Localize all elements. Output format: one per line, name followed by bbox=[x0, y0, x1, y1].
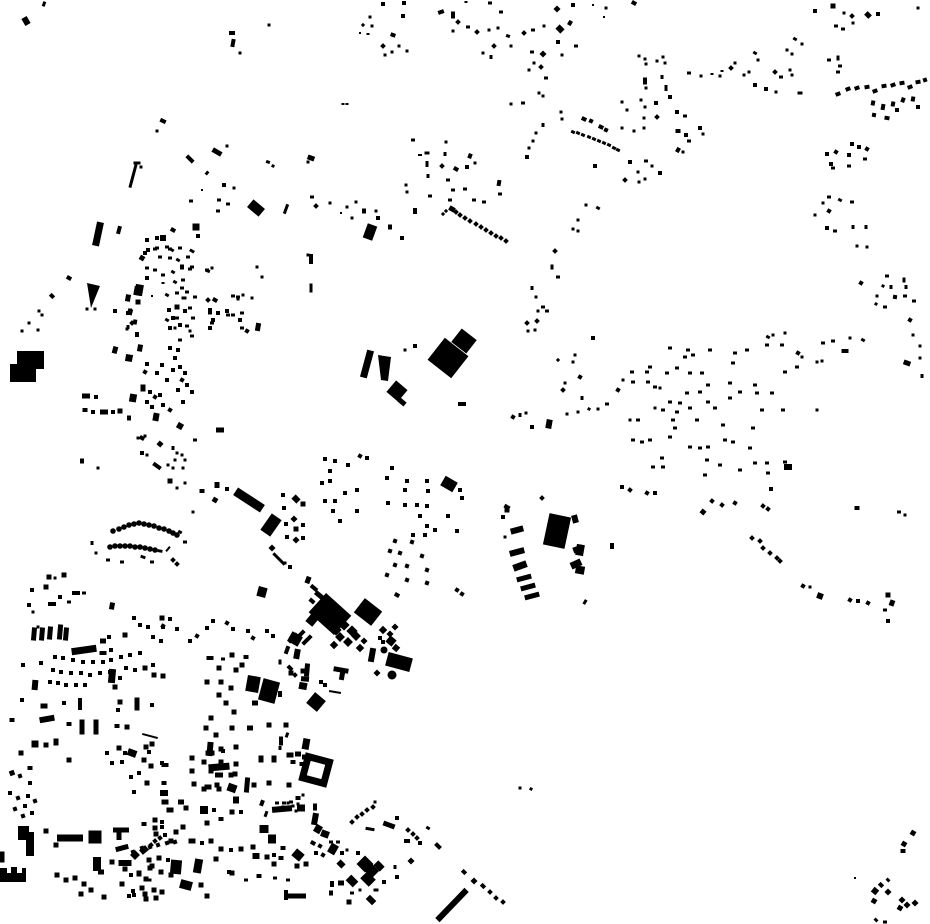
building-footprint bbox=[201, 189, 203, 191]
building-footprint bbox=[307, 161, 310, 164]
building-footprint bbox=[764, 87, 768, 91]
building-footprint bbox=[827, 59, 831, 62]
building-footprint bbox=[100, 651, 107, 655]
building-footprint bbox=[445, 141, 448, 144]
building-footprint bbox=[301, 634, 312, 645]
building-footprint bbox=[291, 848, 304, 861]
building-footprint bbox=[302, 806, 305, 809]
building-footprint bbox=[118, 676, 122, 680]
building-footprint bbox=[253, 853, 260, 859]
building-footprint bbox=[459, 591, 464, 596]
building-footprint bbox=[151, 663, 155, 667]
building-footprint bbox=[57, 624, 63, 639]
building-footprint bbox=[581, 396, 584, 400]
building-footprint bbox=[728, 397, 732, 400]
building-footprint bbox=[266, 160, 271, 164]
building-footprint bbox=[150, 561, 154, 564]
building-footprint bbox=[115, 724, 120, 728]
building-footprint bbox=[129, 775, 133, 779]
building-footprint bbox=[102, 895, 107, 900]
building-footprint bbox=[534, 329, 537, 332]
building-footprint bbox=[284, 723, 289, 728]
building-footprint bbox=[343, 491, 347, 495]
building-footprint bbox=[175, 627, 179, 631]
building-footprint bbox=[592, 137, 597, 141]
building-footprint bbox=[898, 896, 905, 903]
building-footprint bbox=[125, 354, 133, 362]
building-footprint bbox=[675, 147, 681, 153]
building-footprint bbox=[30, 811, 34, 815]
building-footprint bbox=[532, 140, 535, 143]
building-footprint bbox=[605, 403, 609, 406]
building-footprint bbox=[646, 381, 650, 384]
building-footprint bbox=[310, 284, 313, 293]
building-footprint bbox=[20, 813, 25, 818]
building-footprint bbox=[397, 550, 402, 555]
building-footprint bbox=[847, 153, 851, 157]
building-footprint bbox=[123, 867, 128, 872]
building-footprint bbox=[162, 781, 167, 785]
building-footprint bbox=[216, 428, 224, 433]
building-footprint bbox=[695, 419, 699, 422]
building-footprint bbox=[120, 760, 124, 764]
building-footprint bbox=[497, 180, 502, 187]
building-footprint bbox=[849, 13, 855, 19]
building-footprint bbox=[328, 479, 332, 483]
building-footprint bbox=[295, 752, 301, 757]
building-footprint bbox=[460, 496, 464, 500]
building-footprint bbox=[448, 199, 452, 202]
building-footprint bbox=[189, 330, 192, 333]
building-footprint bbox=[48, 680, 52, 684]
building-footprint bbox=[12, 806, 17, 811]
building-footprint bbox=[245, 675, 261, 693]
building-footprint bbox=[264, 811, 269, 818]
building-footprint bbox=[627, 487, 633, 493]
building-polygon bbox=[10, 351, 44, 382]
building-footprint bbox=[452, 30, 455, 33]
building-footprint bbox=[434, 842, 442, 850]
building-footprint bbox=[233, 488, 265, 513]
building-footprint bbox=[685, 392, 689, 395]
building-footprint bbox=[224, 620, 229, 625]
building-footprint bbox=[706, 401, 710, 404]
building-footprint bbox=[384, 54, 387, 57]
building-footprint bbox=[261, 276, 264, 279]
building-footprint bbox=[687, 140, 691, 143]
building-footprint bbox=[128, 653, 132, 657]
building-footprint bbox=[127, 416, 131, 421]
building-footprint bbox=[329, 690, 341, 694]
building-footprint bbox=[404, 349, 407, 352]
building-footprint bbox=[591, 336, 595, 340]
building-footprint bbox=[152, 462, 162, 470]
round-building-footprint bbox=[122, 543, 128, 549]
building-footprint bbox=[544, 77, 548, 80]
building-footprint bbox=[160, 363, 164, 367]
building-footprint bbox=[211, 318, 215, 322]
building-footprint bbox=[73, 876, 78, 881]
building-footprint bbox=[272, 853, 276, 857]
building-footprint bbox=[893, 295, 898, 300]
building-footprint bbox=[176, 452, 179, 455]
building-footprint bbox=[753, 83, 757, 87]
building-polygon bbox=[0, 867, 26, 882]
building-footprint bbox=[428, 195, 432, 198]
building-footprint bbox=[175, 292, 179, 295]
building-footprint bbox=[425, 524, 429, 528]
building-footprint bbox=[117, 832, 122, 840]
building-footprint bbox=[209, 716, 214, 721]
building-footprint bbox=[226, 203, 230, 206]
building-footprint bbox=[467, 218, 473, 224]
building-footprint bbox=[140, 166, 143, 169]
building-footprint bbox=[327, 843, 339, 856]
building-footprint bbox=[125, 294, 131, 302]
building-footprint bbox=[153, 818, 158, 823]
building-footprint bbox=[622, 379, 625, 382]
building-footprint bbox=[51, 668, 55, 672]
building-footprint bbox=[165, 293, 170, 298]
building-footprint bbox=[382, 880, 386, 884]
building-footprint bbox=[26, 794, 30, 798]
building-footprint bbox=[161, 625, 165, 629]
building-footprint bbox=[37, 626, 40, 629]
building-footprint bbox=[809, 586, 812, 589]
building-footprint bbox=[542, 123, 545, 127]
building-footprint bbox=[530, 425, 534, 429]
building-footprint bbox=[881, 104, 886, 111]
building-footprint bbox=[831, 340, 835, 343]
building-footprint bbox=[360, 637, 367, 644]
building-footprint bbox=[411, 533, 415, 537]
building-footprint bbox=[176, 422, 184, 430]
building-footprint bbox=[837, 56, 840, 61]
building-footprint bbox=[250, 635, 255, 640]
building-footprint bbox=[480, 883, 486, 889]
building-footprint bbox=[886, 619, 890, 623]
building-footprint bbox=[889, 599, 896, 606]
building-footprint bbox=[71, 645, 97, 655]
building-footprint bbox=[163, 833, 167, 837]
building-footprint bbox=[113, 309, 117, 313]
building-footprint bbox=[333, 459, 337, 463]
building-footprint bbox=[643, 117, 646, 120]
building-footprint bbox=[644, 58, 647, 61]
building-footprint bbox=[44, 829, 49, 834]
building-footprint bbox=[748, 447, 752, 450]
building-footprint bbox=[247, 726, 253, 731]
building-footprint bbox=[836, 71, 840, 74]
building-footprint bbox=[161, 403, 165, 407]
building-footprint bbox=[185, 154, 194, 163]
building-footprint bbox=[394, 592, 400, 598]
building-footprint bbox=[167, 407, 172, 412]
building-footprint bbox=[284, 522, 288, 526]
building-footprint bbox=[165, 318, 170, 323]
building-footprint bbox=[631, 439, 635, 442]
building-footprint bbox=[0, 852, 5, 863]
building-footprint bbox=[535, 296, 538, 299]
building-footprint bbox=[302, 794, 305, 797]
building-footprint bbox=[193, 296, 197, 299]
building-footprint bbox=[539, 50, 546, 57]
building-footprint bbox=[113, 685, 118, 690]
building-footprint bbox=[172, 446, 175, 450]
building-footprint bbox=[109, 648, 113, 652]
building-footprint bbox=[866, 246, 869, 249]
building-footprint bbox=[284, 890, 288, 900]
building-footprint bbox=[256, 586, 267, 598]
building-footprint bbox=[311, 813, 319, 826]
building-footprint bbox=[144, 435, 147, 438]
building-footprint bbox=[510, 103, 513, 106]
building-footprint bbox=[320, 829, 330, 838]
building-footprint bbox=[142, 369, 147, 374]
building-footprint bbox=[162, 800, 169, 805]
building-footprint bbox=[899, 81, 905, 86]
building-footprint bbox=[150, 405, 154, 409]
building-footprint bbox=[185, 383, 189, 387]
building-footprint bbox=[636, 419, 640, 422]
building-footprint bbox=[205, 894, 210, 899]
building-footprint bbox=[779, 76, 783, 79]
building-footprint bbox=[529, 787, 533, 791]
building-footprint bbox=[166, 858, 170, 862]
building-footprint bbox=[386, 501, 390, 505]
building-footprint bbox=[268, 24, 271, 27]
building-footprint bbox=[658, 171, 662, 175]
building-footprint bbox=[67, 722, 72, 726]
building-footprint bbox=[854, 85, 860, 90]
building-footprint bbox=[884, 116, 890, 121]
building-footprint bbox=[206, 751, 215, 756]
building-footprint bbox=[291, 760, 296, 764]
building-footprint bbox=[72, 591, 80, 595]
building-footprint bbox=[105, 751, 109, 755]
building-footprint bbox=[533, 62, 536, 65]
building-footprint bbox=[310, 196, 314, 199]
building-footprint bbox=[133, 668, 137, 672]
building-footprint bbox=[244, 328, 249, 333]
building-footprint bbox=[607, 143, 612, 147]
building-footprint bbox=[365, 827, 374, 832]
building-footprint bbox=[506, 34, 511, 38]
building-footprint bbox=[205, 297, 211, 303]
building-footprint bbox=[162, 282, 165, 284]
building-footprint bbox=[753, 462, 757, 465]
building-footprint bbox=[244, 655, 249, 659]
building-footprint bbox=[143, 251, 147, 255]
building-footprint bbox=[123, 751, 127, 755]
building-footprint bbox=[209, 839, 214, 844]
building-footprint bbox=[44, 743, 49, 748]
building-footprint bbox=[295, 810, 298, 813]
building-footprint bbox=[144, 897, 149, 902]
building-footprint bbox=[221, 658, 225, 661]
building-footprint bbox=[239, 810, 243, 814]
building-footprint bbox=[302, 738, 311, 750]
building-footprint bbox=[698, 126, 702, 130]
building-footprint bbox=[107, 635, 111, 639]
building-footprint bbox=[827, 196, 831, 199]
building-footprint bbox=[760, 545, 766, 551]
building-footprint bbox=[821, 342, 825, 345]
building-footprint bbox=[170, 557, 176, 563]
building-footprint bbox=[363, 223, 378, 241]
building-footprint bbox=[32, 680, 39, 690]
round-building-footprint bbox=[136, 520, 142, 526]
building-footprint bbox=[151, 295, 153, 297]
building-footprint bbox=[684, 133, 688, 137]
building-footprint bbox=[919, 345, 922, 348]
building-footprint bbox=[308, 598, 315, 605]
building-footprint bbox=[168, 479, 173, 484]
building-footprint bbox=[183, 309, 187, 313]
building-footprint bbox=[141, 385, 146, 392]
building-footprint bbox=[176, 388, 180, 392]
building-footprint bbox=[271, 164, 275, 168]
building-footprint bbox=[19, 751, 24, 756]
building-footprint bbox=[621, 127, 624, 130]
building-footprint bbox=[118, 409, 123, 414]
building-footprint bbox=[478, 224, 484, 230]
building-footprint bbox=[91, 541, 94, 545]
building-footprint bbox=[285, 535, 289, 539]
building-footprint bbox=[644, 106, 647, 109]
building-footprint bbox=[668, 95, 672, 99]
building-footprint bbox=[336, 859, 345, 868]
building-footprint bbox=[340, 851, 344, 855]
building-footprint bbox=[298, 682, 307, 690]
building-footprint bbox=[395, 875, 399, 879]
building-footprint bbox=[165, 378, 169, 382]
building-footprint bbox=[137, 871, 142, 876]
building-footprint bbox=[643, 127, 646, 130]
building-footprint bbox=[534, 318, 540, 324]
building-footprint bbox=[185, 291, 189, 294]
building-footprint bbox=[165, 546, 170, 552]
building-footprint bbox=[493, 895, 499, 901]
building-footprint bbox=[905, 285, 908, 289]
building-footprint bbox=[268, 835, 276, 844]
building-footprint bbox=[451, 189, 455, 192]
building-footprint bbox=[406, 191, 409, 194]
building-footprint bbox=[190, 769, 195, 774]
building-footprint bbox=[638, 181, 641, 184]
building-footprint bbox=[226, 783, 237, 794]
building-footprint bbox=[675, 110, 679, 114]
building-footprint bbox=[279, 746, 282, 750]
building-footprint bbox=[454, 587, 459, 592]
building-footprint bbox=[500, 899, 506, 905]
building-footprint bbox=[528, 147, 531, 150]
building-footprint bbox=[317, 843, 322, 848]
building-footprint bbox=[283, 204, 289, 214]
building-footprint bbox=[458, 402, 466, 406]
building-footprint bbox=[545, 310, 549, 313]
building-footprint bbox=[498, 235, 504, 241]
building-footprint bbox=[188, 268, 192, 271]
building-footprint bbox=[838, 198, 843, 203]
building-footprint bbox=[855, 506, 860, 510]
building-footprint bbox=[561, 54, 564, 57]
building-footprint bbox=[106, 559, 110, 562]
building-footprint bbox=[682, 151, 685, 154]
building-footprint bbox=[229, 31, 235, 35]
building-footprint bbox=[571, 130, 576, 134]
building-footprint bbox=[593, 164, 597, 168]
building-footprint bbox=[444, 152, 447, 156]
building-footprint bbox=[665, 85, 668, 91]
building-footprint bbox=[437, 9, 444, 15]
building-footprint bbox=[912, 334, 915, 337]
building-footprint bbox=[152, 673, 157, 678]
building-footprint bbox=[140, 555, 146, 560]
building-footprint bbox=[874, 302, 878, 306]
building-footprint bbox=[306, 692, 326, 712]
building-footprint bbox=[392, 562, 397, 567]
building-footprint bbox=[766, 335, 771, 340]
building-footprint bbox=[185, 325, 189, 328]
building-footprint bbox=[566, 413, 569, 416]
building-footprint bbox=[821, 360, 824, 363]
building-footprint bbox=[791, 53, 794, 56]
building-footprint bbox=[272, 862, 277, 867]
building-footprint bbox=[157, 549, 162, 553]
building-footprint bbox=[374, 889, 379, 892]
round-building-footprint bbox=[161, 526, 167, 532]
building-footprint bbox=[405, 479, 409, 483]
building-footprint bbox=[388, 225, 392, 230]
building-footprint bbox=[585, 204, 588, 207]
building-footprint bbox=[343, 637, 353, 647]
building-footprint bbox=[128, 164, 137, 188]
building-footprint bbox=[628, 160, 632, 164]
building-footprint bbox=[301, 523, 305, 527]
building-footprint bbox=[101, 660, 105, 664]
building-footprint bbox=[168, 617, 172, 621]
building-footprint bbox=[814, 214, 817, 217]
building-footprint bbox=[340, 212, 342, 214]
building-footprint bbox=[190, 756, 195, 761]
building-footprint bbox=[271, 634, 275, 638]
building-footprint bbox=[160, 825, 164, 829]
building-footprint bbox=[39, 661, 43, 665]
building-footprint bbox=[152, 394, 157, 399]
building-footprint bbox=[405, 184, 408, 187]
building-footprint bbox=[158, 393, 162, 397]
building-footprint bbox=[864, 11, 872, 19]
building-footprint bbox=[753, 384, 757, 387]
building-footprint bbox=[319, 680, 323, 684]
building-footprint bbox=[574, 45, 578, 48]
building-footprint bbox=[374, 801, 377, 804]
building-footprint bbox=[772, 334, 775, 337]
building-footprint bbox=[231, 627, 235, 631]
building-footprint bbox=[780, 344, 784, 347]
building-footprint bbox=[864, 146, 869, 151]
building-footprint bbox=[581, 116, 587, 122]
building-footprint bbox=[738, 469, 742, 472]
building-footprint bbox=[560, 387, 566, 393]
building-footprint bbox=[789, 69, 792, 72]
building-footprint bbox=[28, 322, 31, 325]
building-footprint bbox=[576, 131, 581, 135]
building-footprint bbox=[132, 790, 136, 794]
building-footprint bbox=[145, 400, 149, 404]
building-footprint bbox=[510, 525, 524, 534]
